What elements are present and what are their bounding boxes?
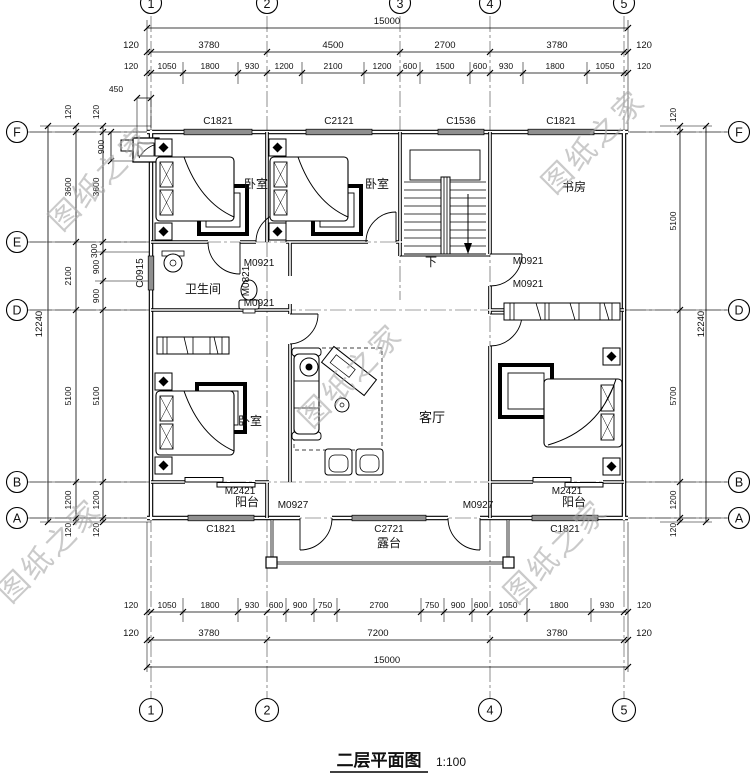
grid-col-4: 4 (487, 0, 494, 11)
dim-bot2-4: 120 (636, 628, 652, 639)
grid-col-2: 2 (264, 0, 271, 11)
dim-top2-1: 3780 (198, 40, 219, 51)
dim-top3-13: 120 (637, 61, 651, 71)
room-label-bathroom: 卫生间 (185, 282, 221, 296)
grid-bubbles-top (141, 0, 635, 14)
dim-top3-8: 1500 (436, 61, 455, 71)
dim-bot1-1: 1050 (158, 600, 177, 610)
dim-top3-5: 2100 (324, 61, 343, 71)
dim-bot2-0: 120 (123, 628, 139, 639)
label-m0927-left: M0927 (278, 500, 309, 511)
grid-row-f-left: F (13, 126, 21, 140)
dim-bot1-13: 930 (600, 600, 614, 610)
grid-col-5-bottom: 5 (621, 704, 628, 718)
dim-rc-2: 5700 (668, 386, 678, 405)
dim-top2-5: 120 (636, 40, 652, 51)
dim-bot1-9: 900 (451, 600, 465, 610)
dim-bot2-1: 3780 (198, 628, 219, 639)
dim-bot1-12: 1800 (550, 600, 569, 610)
dim-bot1-5: 900 (293, 600, 307, 610)
dim-top3-10: 930 (499, 61, 513, 71)
grid-row-f-right: F (735, 126, 743, 140)
grid-row-b-right: B (735, 476, 743, 490)
bed-icon-bedroom2 (269, 139, 361, 240)
dim-bot1-3: 930 (245, 600, 259, 610)
dim-bot1-8: 750 (425, 600, 439, 610)
door-terrace-right (448, 518, 480, 550)
window-c2721-bottom (352, 515, 426, 521)
dim-top3-12: 1050 (596, 61, 615, 71)
grid-row-b-left: B (13, 476, 21, 490)
dim-top2-3: 2700 (434, 40, 455, 51)
floor-plan-canvas: 1 2 3 4 5 1 2 4 5 F E D B A F D B A 1500… (0, 0, 750, 780)
dim-top2-0: 120 (123, 40, 139, 51)
door-bedroom2 (366, 212, 396, 242)
label-c2121-top: C2121 (324, 116, 354, 127)
grid-bubbles-right (729, 122, 750, 529)
window-c1821-top-left (184, 129, 252, 135)
dims-bottom: 120 1050 1800 930 600 900 750 2700 750 9… (123, 600, 652, 666)
label-c1821-bottom-left: C1821 (206, 524, 236, 535)
dim-lo-0: 120 (63, 105, 73, 119)
label-m0927-right: M0927 (463, 500, 494, 511)
dim-bot2-2: 7200 (367, 628, 388, 639)
dim-overall-height-right: 12240 (696, 311, 707, 337)
dim-bot1-0: 120 (124, 600, 138, 610)
dim-li-5: 5100 (91, 386, 101, 405)
dim-top3-6: 1200 (373, 61, 392, 71)
watermark-text-2: 图纸之家 (536, 84, 653, 201)
dim-bot1-2: 1800 (201, 600, 220, 610)
grid-col-1: 1 (148, 0, 155, 11)
label-c2721: C2721 (374, 524, 404, 535)
floor-plan-page: 1 2 3 4 5 1 2 4 5 F E D B A F D B A 1500… (0, 0, 750, 780)
grid-col-1-bottom: 1 (148, 704, 155, 718)
room-label-bedroom3: 卧室 (238, 413, 262, 428)
room-label-balcony-left: 阳台 (235, 494, 259, 509)
label-c1821-top-right: C1821 (546, 116, 576, 127)
grid-col-4-bottom: 4 (487, 704, 494, 718)
dim-top3-11: 1800 (546, 61, 565, 71)
grid-bubble-labels-bottom: 1 2 4 5 (148, 704, 628, 718)
grid-bubble-labels-left: F E D B A (12, 126, 21, 526)
dim-top3-2: 1800 (201, 61, 220, 71)
dim-top3-7: 600 (403, 61, 417, 71)
grid-row-e-left: E (13, 236, 21, 250)
label-m0921-bedroom4: M0921 (513, 279, 544, 290)
label-c1821-top-left: C1821 (203, 116, 233, 127)
dim-rc-1: 5100 (668, 211, 678, 230)
door-terrace-left (300, 518, 332, 550)
room-label-bedroom2: 卧室 (365, 176, 389, 191)
stairs-down-label: 下 (425, 255, 437, 269)
dim-bot1-7: 2700 (370, 600, 389, 610)
dim-top3-1: 1050 (158, 61, 177, 71)
grid-col-5: 5 (621, 0, 628, 11)
dim-bot1-4: 600 (269, 600, 283, 610)
grid-bubble-labels-right: F D B A (734, 126, 743, 526)
grid-bubble-labels-top: 1 2 3 4 5 (148, 0, 628, 11)
dim-overall-width-bottom: 15000 (374, 655, 400, 666)
dim-overall-width-top: 15000 (374, 16, 400, 27)
dim-top2-4: 3780 (546, 40, 567, 51)
watermark-text-5: 图纸之家 (498, 494, 615, 611)
room-label-bedroom1: 卧室 (244, 176, 268, 191)
room-label-living: 客厅 (419, 410, 445, 425)
stairs-icon (404, 150, 486, 254)
page-title: 二层平面图 (337, 751, 422, 770)
dim-li-3: 900 (91, 260, 101, 274)
bed-icon-bedroom1 (155, 139, 247, 240)
bed-icon-bedroom3 (155, 337, 245, 474)
door-bedroom3 (290, 314, 318, 344)
grid-row-d-right: D (734, 304, 743, 318)
grid-row-d-left: D (12, 304, 21, 318)
grid-col-2-bottom: 2 (264, 704, 271, 718)
dim-rc-4: 120 (668, 523, 678, 537)
dims-right: 120 5100 5700 1200 120 12240 (668, 108, 707, 537)
grid-bubbles-bottom (140, 699, 636, 722)
dim-top2-2: 4500 (322, 40, 343, 51)
dim-offset-450: 450 (109, 84, 123, 94)
dim-bot1-6: 750 (318, 600, 332, 610)
dim-bot1-14: 120 (637, 600, 651, 610)
label-m0921-study: M0921 (513, 256, 544, 267)
window-c0915-left (148, 256, 154, 290)
dim-bot1-10: 600 (474, 600, 488, 610)
room-label-terrace: 露台 (377, 535, 401, 550)
dim-rc-0: 120 (668, 108, 678, 122)
dim-bot2-3: 3780 (546, 628, 567, 639)
window-c2121-top (306, 129, 372, 135)
dim-top3-9: 600 (473, 61, 487, 71)
dim-li-2: 300 (89, 244, 99, 258)
label-m0821-vertical: M0821 (241, 265, 252, 296)
dim-top3-4: 1200 (275, 61, 294, 71)
watermark-text-1: 图纸之家 (43, 121, 160, 238)
label-m0921-hall-2: M0921 (244, 298, 275, 309)
dim-rc-3: 1200 (668, 490, 678, 509)
dim-li-4: 900 (91, 289, 101, 303)
grid-bubbles-left (7, 122, 28, 529)
dim-li-0: 120 (91, 105, 101, 119)
dim-top3-0: 120 (124, 61, 138, 71)
window-c1536-top (438, 129, 484, 135)
title-block: 二层平面图 1:100 (330, 751, 466, 772)
door-bathroom (208, 242, 240, 274)
grid-col-3: 3 (397, 0, 404, 11)
dim-overall-height-left: 12240 (34, 311, 45, 337)
window-c1821-bottom-left (188, 515, 254, 521)
dim-lo-3: 5100 (63, 386, 73, 405)
label-c0915: C0915 (135, 258, 146, 288)
label-c1536-top: C1536 (446, 116, 476, 127)
grid-row-a-left: A (13, 512, 22, 526)
dim-top3-3: 930 (245, 61, 259, 71)
grid-row-a-right: A (735, 512, 744, 526)
drawing-scale: 1:100 (436, 755, 466, 769)
dim-lo-2: 2100 (63, 266, 73, 285)
